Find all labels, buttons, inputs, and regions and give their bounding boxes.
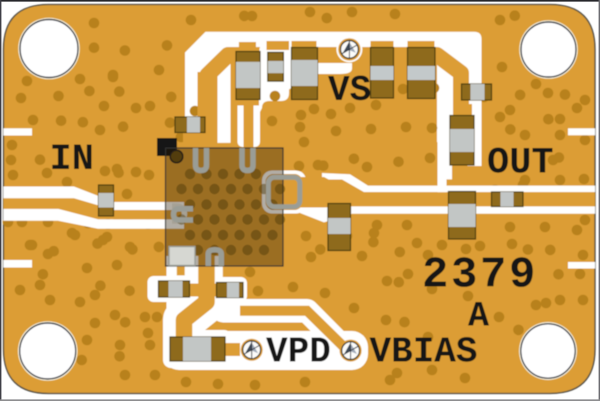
svg-text:IN: IN xyxy=(50,139,94,181)
svg-text:2379: 2379 xyxy=(422,251,538,301)
svg-text:OUT: OUT xyxy=(487,143,554,185)
svg-text:VBIAS: VBIAS xyxy=(370,332,478,373)
svg-text:VPD: VPD xyxy=(266,332,331,373)
svg-text:VS: VS xyxy=(328,70,371,111)
svg-text:A: A xyxy=(468,297,489,337)
